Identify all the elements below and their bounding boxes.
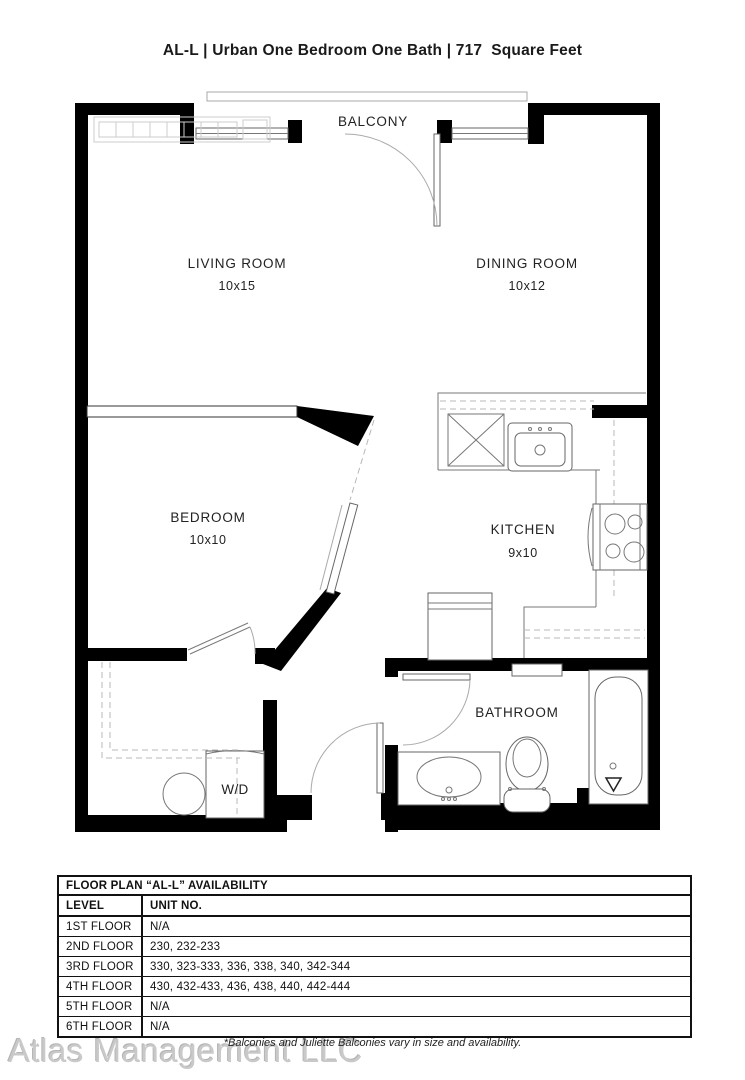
row-units: N/A [143, 997, 690, 1016]
availability-table: FLOOR PLAN “AL-L” AVAILABILITY LEVEL UNI… [57, 875, 692, 1038]
living-room-dims: 10x15 [218, 279, 255, 293]
row-units: 230, 232-233 [143, 937, 690, 956]
table-row: 5TH FLOOR N/A [59, 997, 690, 1017]
sliding-door-icon [320, 420, 374, 594]
availability-table-header: LEVEL UNIT NO. [59, 896, 690, 917]
floor-plan-drawing: BALCONY LIVING ROOM 10x15 DINING ROOM 10… [0, 0, 745, 870]
entry-door-icon [311, 723, 383, 793]
vanity-sink-icon [398, 752, 500, 805]
washer-dryer-label: W/D [221, 782, 248, 797]
bathroom-shelf-icon [512, 664, 562, 676]
table-row: 1ST FLOOR N/A [59, 917, 690, 937]
bathroom-door-icon [403, 674, 470, 745]
bedroom-dims: 10x10 [189, 533, 226, 547]
interior-walls [87, 405, 660, 832]
balcony-door-icon [345, 134, 440, 226]
row-units: N/A [143, 917, 690, 936]
bedroom-living-partition [87, 406, 297, 417]
kitchen-dims: 9x10 [508, 546, 538, 560]
balcony-rail [207, 92, 527, 101]
refrigerator-icon [428, 593, 492, 660]
row-units: 430, 432-433, 436, 438, 440, 442-444 [143, 977, 690, 996]
kitchen-sink-icon [508, 423, 572, 471]
bathroom-label: BATHROOM [475, 705, 558, 720]
bedroom-label: BEDROOM [170, 510, 245, 525]
disclaimer-note: *Balconies and Juliette Balconies vary i… [0, 1037, 745, 1049]
row-level: 5TH FLOOR [59, 997, 143, 1016]
kitchen-label: KITCHEN [491, 522, 556, 537]
toilet-icon [504, 737, 550, 812]
row-units: 330, 323-333, 336, 338, 340, 342-344 [143, 957, 690, 976]
row-level: 2ND FLOOR [59, 937, 143, 956]
row-level: 3RD FLOOR [59, 957, 143, 976]
row-level: 4TH FLOOR [59, 977, 143, 996]
floor-plan-page: AL-L | Urban One Bedroom One Bath | 717 … [0, 0, 745, 1080]
balcony-windows [196, 128, 528, 139]
table-row: 4TH FLOOR 430, 432-433, 436, 438, 440, 4… [59, 977, 690, 997]
dining-room-dims: 10x12 [508, 279, 545, 293]
column-header-unit: UNIT NO. [143, 896, 690, 915]
column-header-level: LEVEL [59, 896, 143, 915]
table-row: 3RD FLOOR 330, 323-333, 336, 338, 340, 3… [59, 957, 690, 977]
availability-table-title: FLOOR PLAN “AL-L” AVAILABILITY [59, 877, 690, 896]
dining-room-label: DINING ROOM [476, 256, 578, 271]
table-row: 2ND FLOOR 230, 232-233 [59, 937, 690, 957]
living-room-label: LIVING ROOM [188, 256, 287, 271]
water-heater-icon [163, 773, 205, 815]
row-level: 1ST FLOOR [59, 917, 143, 936]
stove-icon [588, 504, 647, 570]
balcony-label: BALCONY [338, 114, 408, 129]
bedroom-door-icon [188, 623, 255, 654]
bathtub-icon [589, 670, 648, 804]
